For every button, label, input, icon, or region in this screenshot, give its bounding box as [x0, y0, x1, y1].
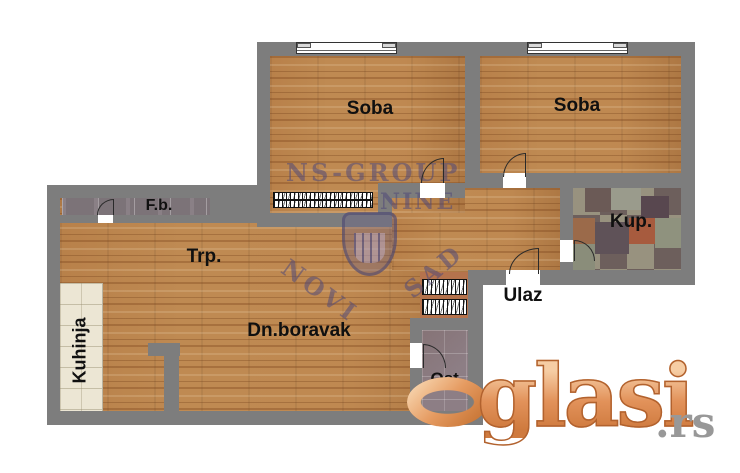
- wall-block-fb-right: [210, 198, 260, 223]
- wall-left-outer: [47, 185, 60, 425]
- window-cap: [297, 43, 311, 48]
- label-kuhinja: Kuhinja: [70, 291, 91, 411]
- oglasi-logo: glasi .rs: [405, 350, 725, 473]
- label-trpezarija: Trp.: [164, 246, 244, 268]
- wall-kitchen-stub-h: [148, 343, 180, 356]
- wall-pantry-top: [410, 318, 468, 330]
- label-fb: F.b.: [126, 197, 192, 215]
- wall-kitchen-stub-v: [164, 356, 179, 424]
- window-cap: [613, 43, 627, 48]
- oglasi-tld: .rs: [655, 398, 715, 447]
- door-gap-fb: [98, 215, 113, 223]
- wall-between-rooms: [465, 42, 480, 188]
- wall-right-upper: [681, 42, 695, 285]
- label-kupatilo: Kup.: [591, 211, 671, 233]
- wall-below-fb: [60, 215, 222, 223]
- door-gap-bathroom: [560, 240, 573, 262]
- closet-soba: [273, 192, 373, 200]
- label-ulaz: Ulaz: [483, 285, 563, 307]
- window-cap: [528, 43, 542, 48]
- closet-hall: [422, 299, 467, 315]
- label-dnevni-boravak: Dn.boravak: [243, 320, 355, 342]
- closet-soba: [273, 200, 373, 208]
- window-cap: [382, 43, 396, 48]
- oglasi-o-icon: [407, 377, 488, 427]
- door-gap-soba-left: [420, 183, 445, 198]
- label-soba-right: Soba: [537, 95, 617, 117]
- wall-hall-bottom: [468, 270, 695, 285]
- floor-plan: Soba Soba Kup. F.b. Trp. Dn.boravak Ulaz…: [0, 0, 740, 473]
- label-soba-left: Soba: [330, 98, 410, 120]
